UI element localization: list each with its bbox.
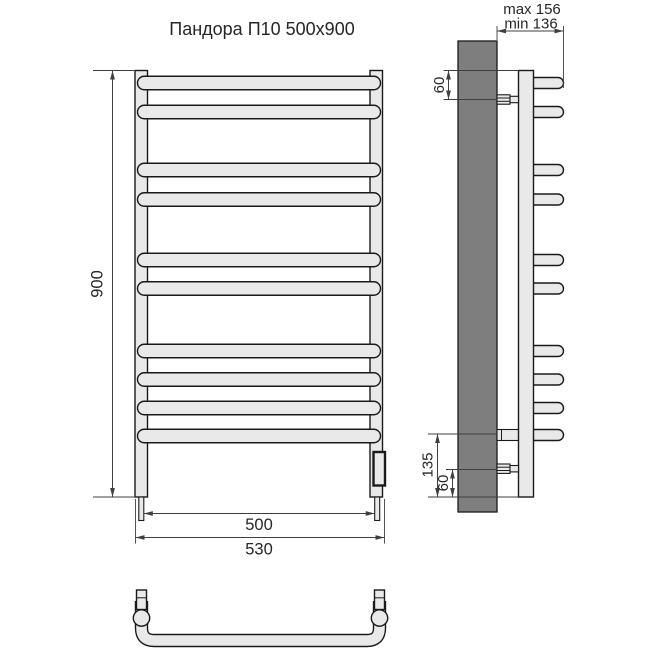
wall-plate-right <box>375 590 385 610</box>
drawing-title: Пандора П10 500x900 <box>169 19 354 39</box>
height-dim-label: 900 <box>89 270 107 298</box>
bracket-stud <box>510 96 519 102</box>
bracket-body <box>497 464 510 473</box>
wall-plate-left <box>137 590 147 610</box>
towel-rail-technical-drawing: Пандора П10 500x900 900 500 530 <box>0 0 650 650</box>
front-rung <box>138 401 381 415</box>
side-post <box>519 71 534 498</box>
drawing-sheet: Пандора П10 500x900 900 500 530 <box>0 0 650 650</box>
front-right-post-stub <box>375 497 380 521</box>
front-view <box>135 71 385 521</box>
front-rung <box>138 193 381 207</box>
wall-bracket-top <box>497 95 519 104</box>
front-rung <box>138 76 381 90</box>
front-rung <box>138 344 381 358</box>
rail-width-dim-label: 500 <box>245 516 273 534</box>
front-rung <box>138 163 381 177</box>
front-rung <box>138 373 381 387</box>
bottom-rung-wall-arm <box>497 430 521 441</box>
mounting-ball-right <box>371 610 387 626</box>
front-rung <box>138 282 381 296</box>
front-rung <box>138 429 381 443</box>
bracket-stud <box>510 466 519 472</box>
electric-switch-box <box>374 452 386 486</box>
bottom-rung-offset-label: 135 <box>420 452 437 477</box>
front-left-post-stub <box>139 497 144 521</box>
front-rung <box>138 105 381 119</box>
wall-offset-min-label: min 136 <box>504 16 557 33</box>
front-rung <box>138 253 381 267</box>
wall-section <box>458 41 497 512</box>
top-view <box>133 590 387 641</box>
wall-bracket-bottom <box>497 464 519 473</box>
side-view <box>458 41 564 512</box>
front-rungs <box>138 76 381 443</box>
bottom-bracket-offset-label: 60 <box>435 475 452 492</box>
front-dimensions: 900 500 530 <box>89 71 385 559</box>
u-rung-tube-outline <box>142 601 380 641</box>
mounting-ball-left <box>133 610 149 626</box>
top-bracket-offset-label: 60 <box>431 77 448 94</box>
bracket-body <box>497 95 510 104</box>
overall-width-dim-label: 530 <box>245 541 273 559</box>
